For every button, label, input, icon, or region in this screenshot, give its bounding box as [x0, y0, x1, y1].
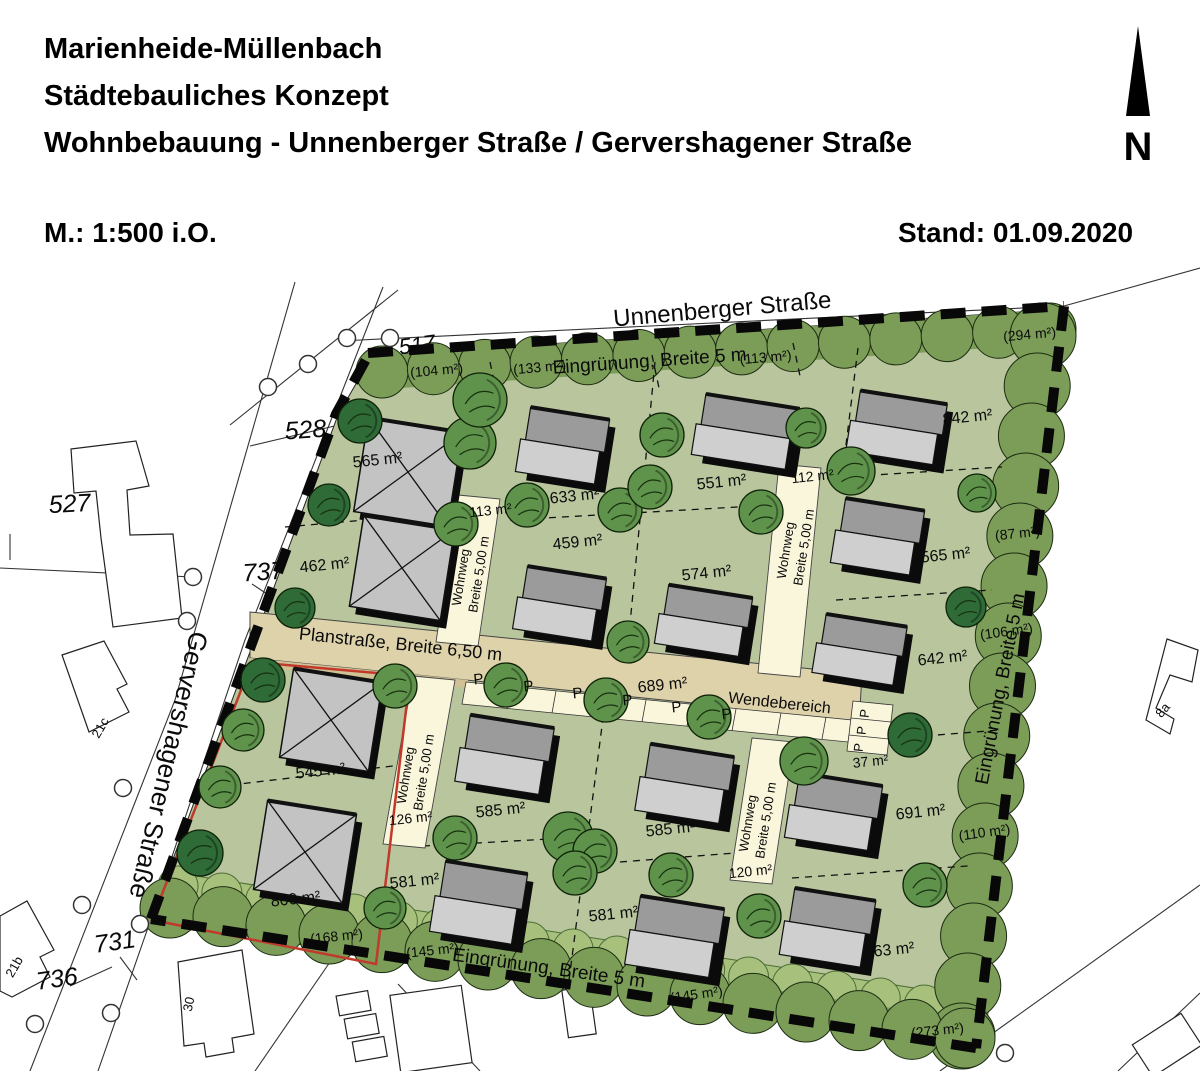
parking-p-label: P — [622, 692, 634, 710]
parking-p-label: P — [473, 671, 485, 689]
tree — [737, 894, 781, 938]
title-line-1: Marienheide-Müllenbach — [44, 26, 912, 73]
hedge-scallop — [829, 991, 889, 1051]
hedge-scallop — [776, 982, 836, 1042]
tree — [786, 408, 826, 448]
house-gable-roof — [428, 860, 534, 953]
tree — [607, 621, 649, 663]
north-label: N — [1114, 127, 1162, 167]
survey-point-icon — [179, 613, 196, 630]
house-gable-roof — [511, 565, 613, 650]
survey-point-icon — [260, 379, 277, 396]
survey-point-icon — [382, 330, 399, 347]
title-line-2: Städtebauliches Konzept — [44, 73, 912, 120]
parking-p-label: P — [671, 699, 683, 717]
date-note: Stand: 01.09.2020 — [898, 217, 1133, 249]
tree — [640, 413, 684, 457]
tree — [739, 490, 783, 534]
tree — [241, 658, 285, 702]
tree — [903, 863, 947, 907]
building-outline — [1132, 1013, 1200, 1071]
scale-note: M.: 1:500 i.O. — [44, 217, 217, 249]
tree — [177, 830, 223, 876]
tree — [373, 664, 417, 708]
building-outline — [390, 985, 472, 1071]
parcel-number: 527 — [48, 489, 92, 519]
north-arrow: N — [1114, 24, 1162, 167]
parking-p-label: P — [523, 678, 535, 696]
tree — [222, 709, 264, 751]
parking-p-label: P — [857, 708, 873, 718]
tree — [199, 766, 241, 808]
house-gable-roof — [514, 406, 616, 492]
tree — [338, 399, 382, 443]
parcel-number: 737 — [242, 557, 287, 588]
tree — [780, 737, 828, 785]
parking-p-label: P — [851, 742, 867, 752]
hedge-scallop — [935, 1008, 995, 1068]
tree — [453, 373, 507, 427]
tree — [484, 663, 528, 707]
parking-p-label: P — [572, 685, 584, 703]
tree — [553, 851, 597, 895]
parcel-number: 517 — [397, 330, 438, 360]
survey-point-icon — [997, 1045, 1014, 1062]
north-arrow-icon — [1114, 24, 1162, 120]
building-outline-8a — [1146, 639, 1198, 734]
parking-p-label: P — [854, 725, 870, 735]
tree — [584, 678, 628, 722]
house-number: 30 — [180, 995, 198, 1012]
building-outline — [71, 441, 182, 627]
tree — [827, 447, 875, 495]
building-outline-21c — [62, 641, 129, 732]
tree — [505, 483, 549, 527]
tree — [946, 587, 986, 627]
tree — [649, 853, 693, 897]
survey-point-icon — [103, 1005, 120, 1022]
hedge-scallop — [723, 973, 783, 1033]
survey-point-icon — [27, 1016, 44, 1033]
parcel-number: 731 — [92, 925, 137, 959]
parcel-number: 528 — [284, 415, 328, 446]
building-outline-garages — [336, 989, 387, 1063]
tree — [364, 887, 406, 929]
house-gable-roof — [454, 714, 562, 803]
house-gable-roof — [829, 497, 931, 583]
survey-point-icon — [115, 780, 132, 797]
house-gable-roof — [778, 887, 883, 976]
title-line-3: Wohnbebauung - Unnenberger Straße / Gerv… — [44, 120, 912, 167]
tree — [275, 588, 315, 628]
plan-document: Unnenberger StraßeGervershagener StraßeP… — [0, 0, 1200, 1071]
survey-point-icon — [74, 897, 91, 914]
survey-point-icon — [300, 356, 317, 373]
tree — [888, 713, 932, 757]
tree — [308, 484, 350, 526]
tree — [958, 474, 996, 512]
survey-point-icon — [185, 569, 202, 586]
parking-p-label: P — [721, 706, 733, 724]
survey-point-icon — [339, 330, 356, 347]
title-block: Marienheide-Müllenbach Städtebauliches K… — [44, 26, 912, 167]
tree — [433, 816, 477, 860]
parcel-number: 736 — [34, 962, 79, 996]
tree — [628, 465, 672, 509]
